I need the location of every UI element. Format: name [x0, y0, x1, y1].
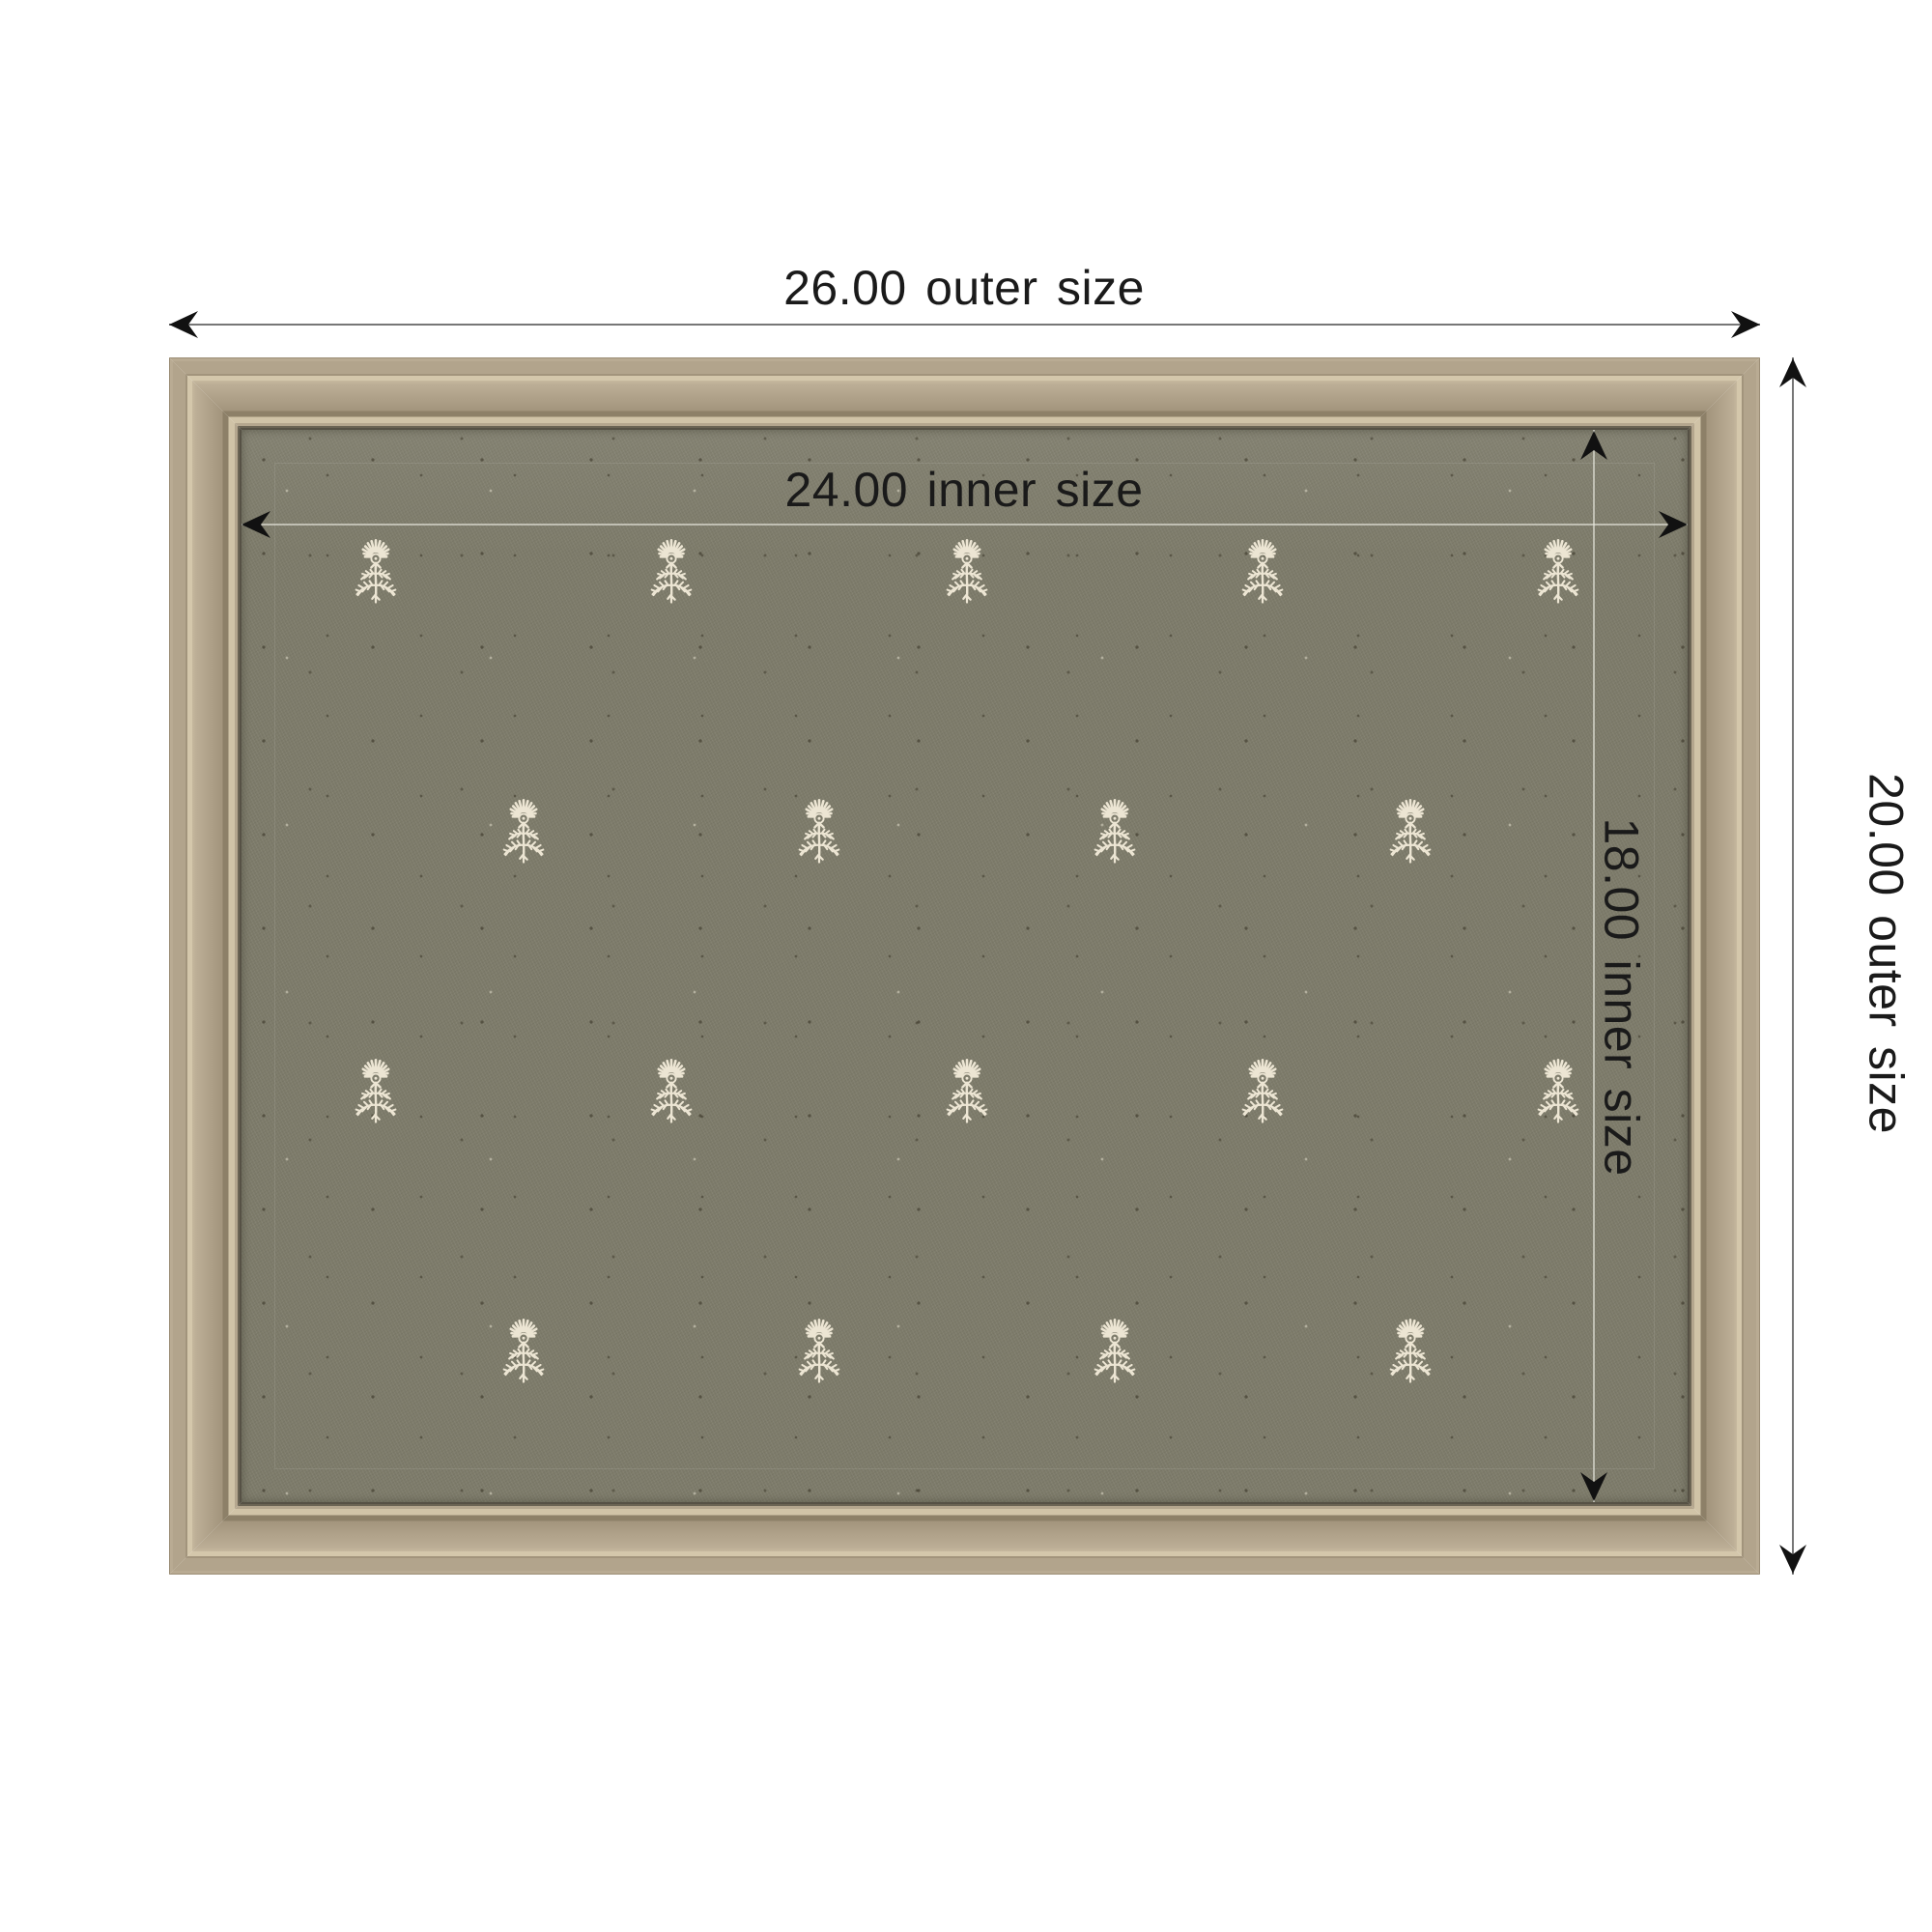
frame-left-moulding [169, 357, 241, 1575]
outer-width-line [169, 324, 1760, 326]
flower-motif [349, 537, 403, 609]
flower-motif [349, 1057, 403, 1128]
inner-width-line [241, 524, 1688, 526]
outer-width-arrow-left-icon [169, 311, 198, 338]
flower-motif [792, 1317, 846, 1388]
flower-motif [1383, 797, 1437, 868]
outer-height-label: 20.00 outer size [1861, 773, 1912, 1134]
flower-motif [940, 1057, 994, 1128]
flower-motif [1531, 537, 1585, 609]
outer-height-line [1792, 357, 1794, 1575]
flower-motif [497, 797, 551, 868]
flower-motif [1236, 1057, 1290, 1128]
flower-motif [497, 1317, 551, 1388]
flower-motif [792, 797, 846, 868]
frame-right-moulding [1688, 357, 1760, 1575]
frame-top-moulding [169, 357, 1760, 430]
flower-motif [644, 537, 698, 609]
flower-motif [1088, 797, 1142, 868]
dimension-diagram: 26.00 outer size 20.00 outer size 24.00 … [0, 0, 1932, 1932]
outer-height-arrow-down-icon [1779, 1545, 1806, 1574]
outer-height-arrow-up-icon [1779, 358, 1806, 387]
flower-motif [1383, 1317, 1437, 1388]
inner-height-arrow-up-icon [1580, 431, 1607, 460]
fabric-panel [241, 430, 1688, 1502]
outer-width-arrow-right-icon [1731, 311, 1760, 338]
flower-motif [1236, 537, 1290, 609]
flower-motif [1088, 1317, 1142, 1388]
flower-motif [940, 537, 994, 609]
inner-height-line [1593, 430, 1595, 1502]
inner-width-arrow-left-icon [241, 511, 270, 538]
flower-motif [644, 1057, 698, 1128]
inner-height-arrow-down-icon [1580, 1472, 1607, 1501]
inner-height-label: 18.00 inner size [1596, 817, 1647, 1176]
picture-frame [169, 357, 1760, 1575]
inner-width-label: 24.00 inner size [784, 465, 1143, 516]
frame-bottom-moulding [169, 1502, 1760, 1575]
inner-width-arrow-right-icon [1659, 511, 1688, 538]
outer-width-label: 26.00 outer size [783, 263, 1145, 314]
flower-motif [1531, 1057, 1585, 1128]
flower-pattern [241, 430, 1688, 1502]
